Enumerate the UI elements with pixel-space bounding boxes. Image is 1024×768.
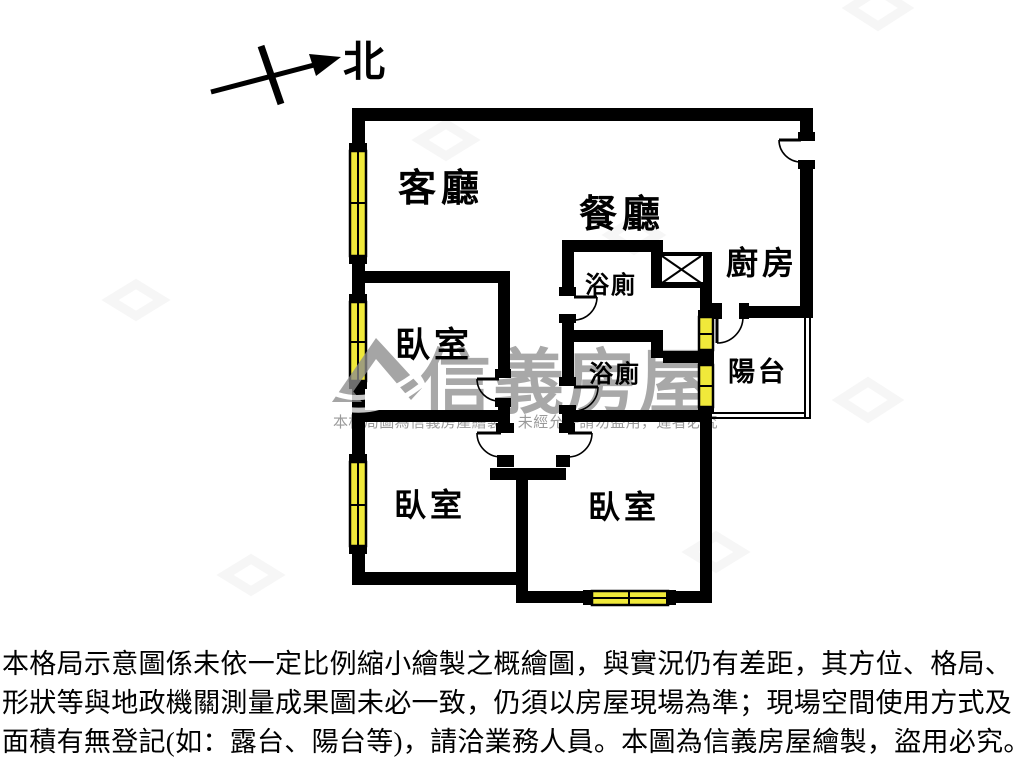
wall-segment <box>352 108 813 121</box>
window-cap <box>698 406 714 414</box>
wall-segment <box>490 468 566 480</box>
door-jamb <box>495 398 511 407</box>
room-label-balcony: 陽台 <box>728 356 788 387</box>
window-cap <box>349 545 367 554</box>
room-label-bath-lower: 浴廁 <box>589 360 641 388</box>
door-jamb <box>739 303 749 319</box>
room-label-bath-upper: 浴廁 <box>585 271 637 299</box>
disclaimer-line-2: 形狀等與地政機關測量成果圖未必一致，仍須以房屋現場為準；現場空間使用方式及 <box>2 684 1024 723</box>
room-label-kitchen: 廚房 <box>726 245 798 281</box>
door-jamb <box>495 369 511 378</box>
door-jamb <box>559 287 576 296</box>
north-arrow-head <box>309 54 341 76</box>
floorplan-page: 信義房屋 本格局圖為信義房產繪製，未經允許請勿盜用，違者必究 <box>0 0 1024 768</box>
wall-segment <box>651 342 663 358</box>
door-arc <box>717 317 743 343</box>
door-arc <box>568 433 592 457</box>
disclaimer-line-1: 本格局示意圖係未依一定比例縮小繪製之概繪圖，與實況仍有差距，其方位、格局、 <box>2 645 1024 684</box>
wall-segment <box>562 410 712 422</box>
disclaimer-line-3: 面積有無登記(如：露台、陽台等)，請洽業務人員。本圖為信義房屋繪製，盜用必究。 <box>2 723 1024 762</box>
north-label: 北 <box>343 40 385 86</box>
disclaimer: 本格局示意圖係未依一定比例縮小繪製之概繪圖，與實況仍有差距，其方位、格局、 形狀… <box>2 645 1024 762</box>
wall-segment <box>562 320 574 385</box>
room-label-bedroom-mid: 臥室 <box>395 325 473 365</box>
door-arc <box>779 140 801 162</box>
window-cap <box>698 349 714 357</box>
wall-segment <box>700 252 712 603</box>
door-jamb <box>559 405 576 414</box>
wall-segment <box>358 271 510 283</box>
wall-segment <box>568 330 663 342</box>
wall-segment <box>800 161 813 316</box>
wall-segment <box>562 240 663 252</box>
window-cap <box>666 590 676 605</box>
wall-segment <box>498 271 510 378</box>
door-jamb <box>559 314 576 323</box>
door-arc <box>574 297 597 320</box>
north-arrow-line <box>211 64 318 92</box>
wall-segment <box>743 306 813 318</box>
door-arc <box>477 433 501 457</box>
room-label-bedroom-bottom-right: 臥室 <box>588 489 660 525</box>
north-arrow: 北 <box>211 40 385 104</box>
room-label-bedroom-bottom-left: 臥室 <box>394 487 466 523</box>
window-cap <box>349 255 367 264</box>
wall-segment <box>352 572 521 585</box>
room-label-living: 客廳 <box>398 167 484 210</box>
shaft-xbox <box>660 254 705 284</box>
door-jamb <box>559 377 576 386</box>
wall-segment <box>352 410 510 422</box>
room-label-dining: 餐廳 <box>579 194 665 236</box>
door-jamb <box>556 455 570 467</box>
